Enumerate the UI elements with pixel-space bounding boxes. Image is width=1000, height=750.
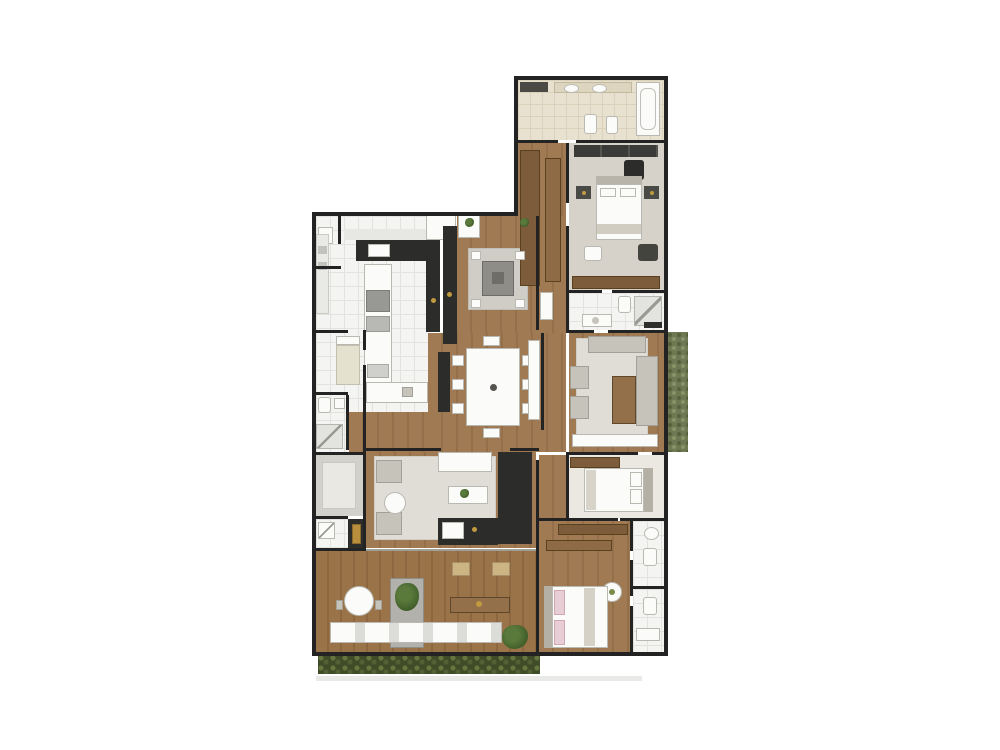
sofa <box>588 336 646 353</box>
wardrobe <box>546 540 612 551</box>
wall <box>363 448 441 451</box>
pillow-pink <box>554 620 565 645</box>
wall <box>566 226 569 330</box>
basin <box>592 317 599 324</box>
chair <box>471 251 481 260</box>
pouf <box>584 246 602 261</box>
table-accent <box>476 601 482 607</box>
island-sink <box>367 364 389 378</box>
hedge <box>318 655 540 674</box>
sink <box>644 527 659 540</box>
armchair <box>570 366 589 389</box>
counter-handle <box>431 298 436 303</box>
wardrobe <box>570 457 620 468</box>
pillow <box>630 472 642 487</box>
room-kitchen-passage <box>349 412 428 452</box>
nightstand-left-lamp <box>582 191 586 195</box>
wall <box>566 455 569 518</box>
wall <box>541 333 544 430</box>
bed-throw <box>597 224 641 234</box>
wall <box>536 548 539 652</box>
chair-tan <box>452 562 470 576</box>
round-side-table <box>384 492 406 514</box>
toilet <box>643 597 657 615</box>
room-hall-lower <box>539 455 566 518</box>
wall <box>346 395 349 450</box>
bidet <box>606 116 618 134</box>
sink-left <box>564 84 579 93</box>
bed-headboard <box>596 176 642 184</box>
chair <box>515 251 525 260</box>
bed-headboard <box>544 586 552 648</box>
sliding-glass-door <box>366 549 536 551</box>
chair <box>471 299 481 308</box>
oven-stack <box>366 290 390 312</box>
armchair <box>376 460 402 483</box>
nightstand-right-lamp <box>650 191 654 195</box>
kitchen-counter-vertical <box>426 240 440 332</box>
buffet <box>438 352 450 412</box>
stool <box>336 600 343 610</box>
chair <box>483 336 500 346</box>
kitchen-bottom-counter <box>366 382 428 403</box>
wall <box>630 521 633 551</box>
bed-headboard <box>644 468 653 512</box>
sofa <box>438 452 492 472</box>
round-table <box>344 586 374 616</box>
bar-accent <box>472 527 477 532</box>
wall <box>312 452 366 455</box>
armchair <box>376 512 402 535</box>
wall <box>363 330 366 350</box>
wall <box>312 212 316 656</box>
chair <box>452 379 464 390</box>
wall <box>312 212 518 216</box>
wall <box>536 518 618 521</box>
wardrobe-run-right <box>545 158 561 282</box>
wall <box>514 76 668 80</box>
hall-mat <box>322 462 356 509</box>
wall <box>514 76 518 216</box>
chair <box>452 403 464 414</box>
bar-sink <box>442 522 464 539</box>
wall <box>566 290 602 293</box>
cabinet-knob <box>447 292 452 297</box>
chair-tan <box>492 562 510 576</box>
wall <box>576 140 664 143</box>
stool <box>375 600 382 610</box>
door-panel <box>644 322 662 328</box>
wall <box>312 516 348 519</box>
tall-cabinet <box>443 226 457 344</box>
wall <box>514 140 558 143</box>
toilet <box>618 296 631 313</box>
coffee-table <box>612 376 636 424</box>
wall <box>620 518 664 521</box>
wall <box>536 460 539 548</box>
pillow <box>630 489 642 504</box>
wall <box>608 330 664 333</box>
sink-right <box>592 84 607 93</box>
chair <box>483 428 500 438</box>
vertical-garden <box>668 332 688 452</box>
sink <box>402 387 413 397</box>
corner-basin <box>318 522 335 539</box>
media-wall <box>498 452 532 544</box>
chair <box>452 355 464 366</box>
hedge-shadow <box>316 676 642 681</box>
bathtub-basin <box>640 88 656 130</box>
wall <box>612 290 664 293</box>
maid-bed <box>336 345 360 385</box>
toilet <box>318 397 331 413</box>
maid-bed-pillow <box>336 336 360 345</box>
wall <box>312 266 341 269</box>
wall <box>536 216 539 330</box>
wall <box>338 216 341 244</box>
cooktop <box>368 244 390 257</box>
wall <box>630 606 633 652</box>
wall <box>566 452 638 455</box>
wall <box>363 365 366 452</box>
shower <box>316 424 343 449</box>
armchair <box>570 396 589 419</box>
wall <box>566 143 569 203</box>
wall <box>566 330 594 333</box>
counter-appliance <box>318 246 327 254</box>
chair <box>515 299 525 308</box>
toilet <box>584 114 597 134</box>
console <box>572 434 658 447</box>
wall <box>316 330 348 333</box>
wall <box>312 652 668 656</box>
sink <box>334 398 345 409</box>
wall <box>312 392 348 395</box>
bath-counter-dark <box>520 82 548 92</box>
bedroom-wardrobe <box>574 145 658 157</box>
floor-plan-canvas <box>0 0 1000 750</box>
wall <box>363 452 366 548</box>
bed-throw <box>584 588 595 646</box>
centerpiece <box>490 384 497 391</box>
armchair <box>638 244 658 261</box>
chaise <box>636 356 658 426</box>
pillow-pink <box>554 590 565 615</box>
wardrobe <box>558 524 628 535</box>
gold-cabinet <box>352 524 361 544</box>
wall <box>510 448 539 451</box>
appliance <box>366 316 390 332</box>
pillow <box>600 188 616 197</box>
terrace-counter <box>330 622 502 643</box>
low-cabinet <box>572 276 660 289</box>
plant-center <box>609 589 615 595</box>
wall <box>632 586 664 589</box>
wall <box>630 560 633 596</box>
backsplash-counter <box>344 229 428 240</box>
pillow <box>620 188 636 197</box>
bed-throw <box>586 470 596 510</box>
table-center <box>492 272 504 284</box>
bath-vanity <box>636 628 660 641</box>
toilet <box>643 548 657 566</box>
wall <box>312 548 366 551</box>
closet-shelf <box>540 292 553 320</box>
sideboard <box>528 340 540 420</box>
wall <box>664 76 668 656</box>
wall <box>652 452 664 455</box>
